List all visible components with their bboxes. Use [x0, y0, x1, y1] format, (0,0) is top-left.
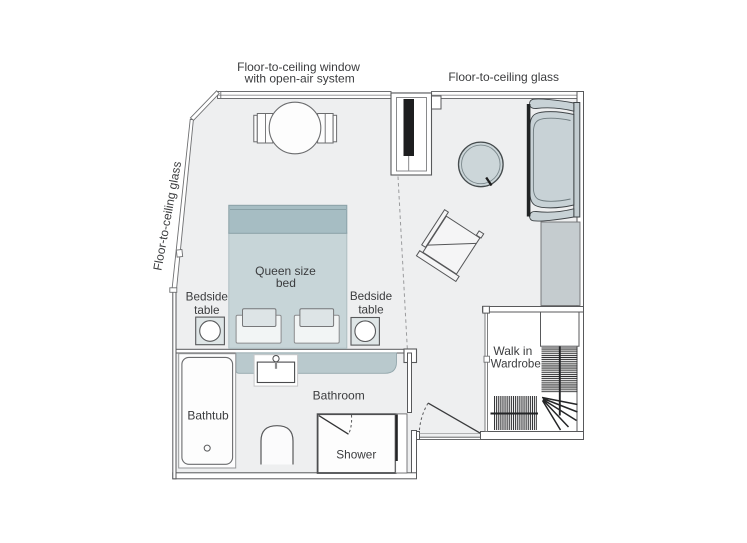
- svg-text:table: table: [358, 304, 383, 317]
- svg-text:Floor-to-ceiling glass: Floor-to-ceiling glass: [448, 70, 559, 84]
- svg-text:Shower: Shower: [336, 448, 376, 462]
- svg-text:Bedside: Bedside: [350, 290, 392, 303]
- svg-text:Wardrobe: Wardrobe: [491, 359, 541, 371]
- svg-text:Bathtub: Bathtub: [187, 409, 229, 423]
- svg-text:Bedside: Bedside: [186, 290, 228, 303]
- svg-text:Walk in: Walk in: [493, 344, 532, 358]
- svg-text:bed: bed: [276, 276, 296, 290]
- svg-text:with open-air system: with open-air system: [244, 72, 355, 86]
- svg-text:Bathroom: Bathroom: [313, 388, 365, 402]
- svg-text:table: table: [194, 304, 219, 317]
